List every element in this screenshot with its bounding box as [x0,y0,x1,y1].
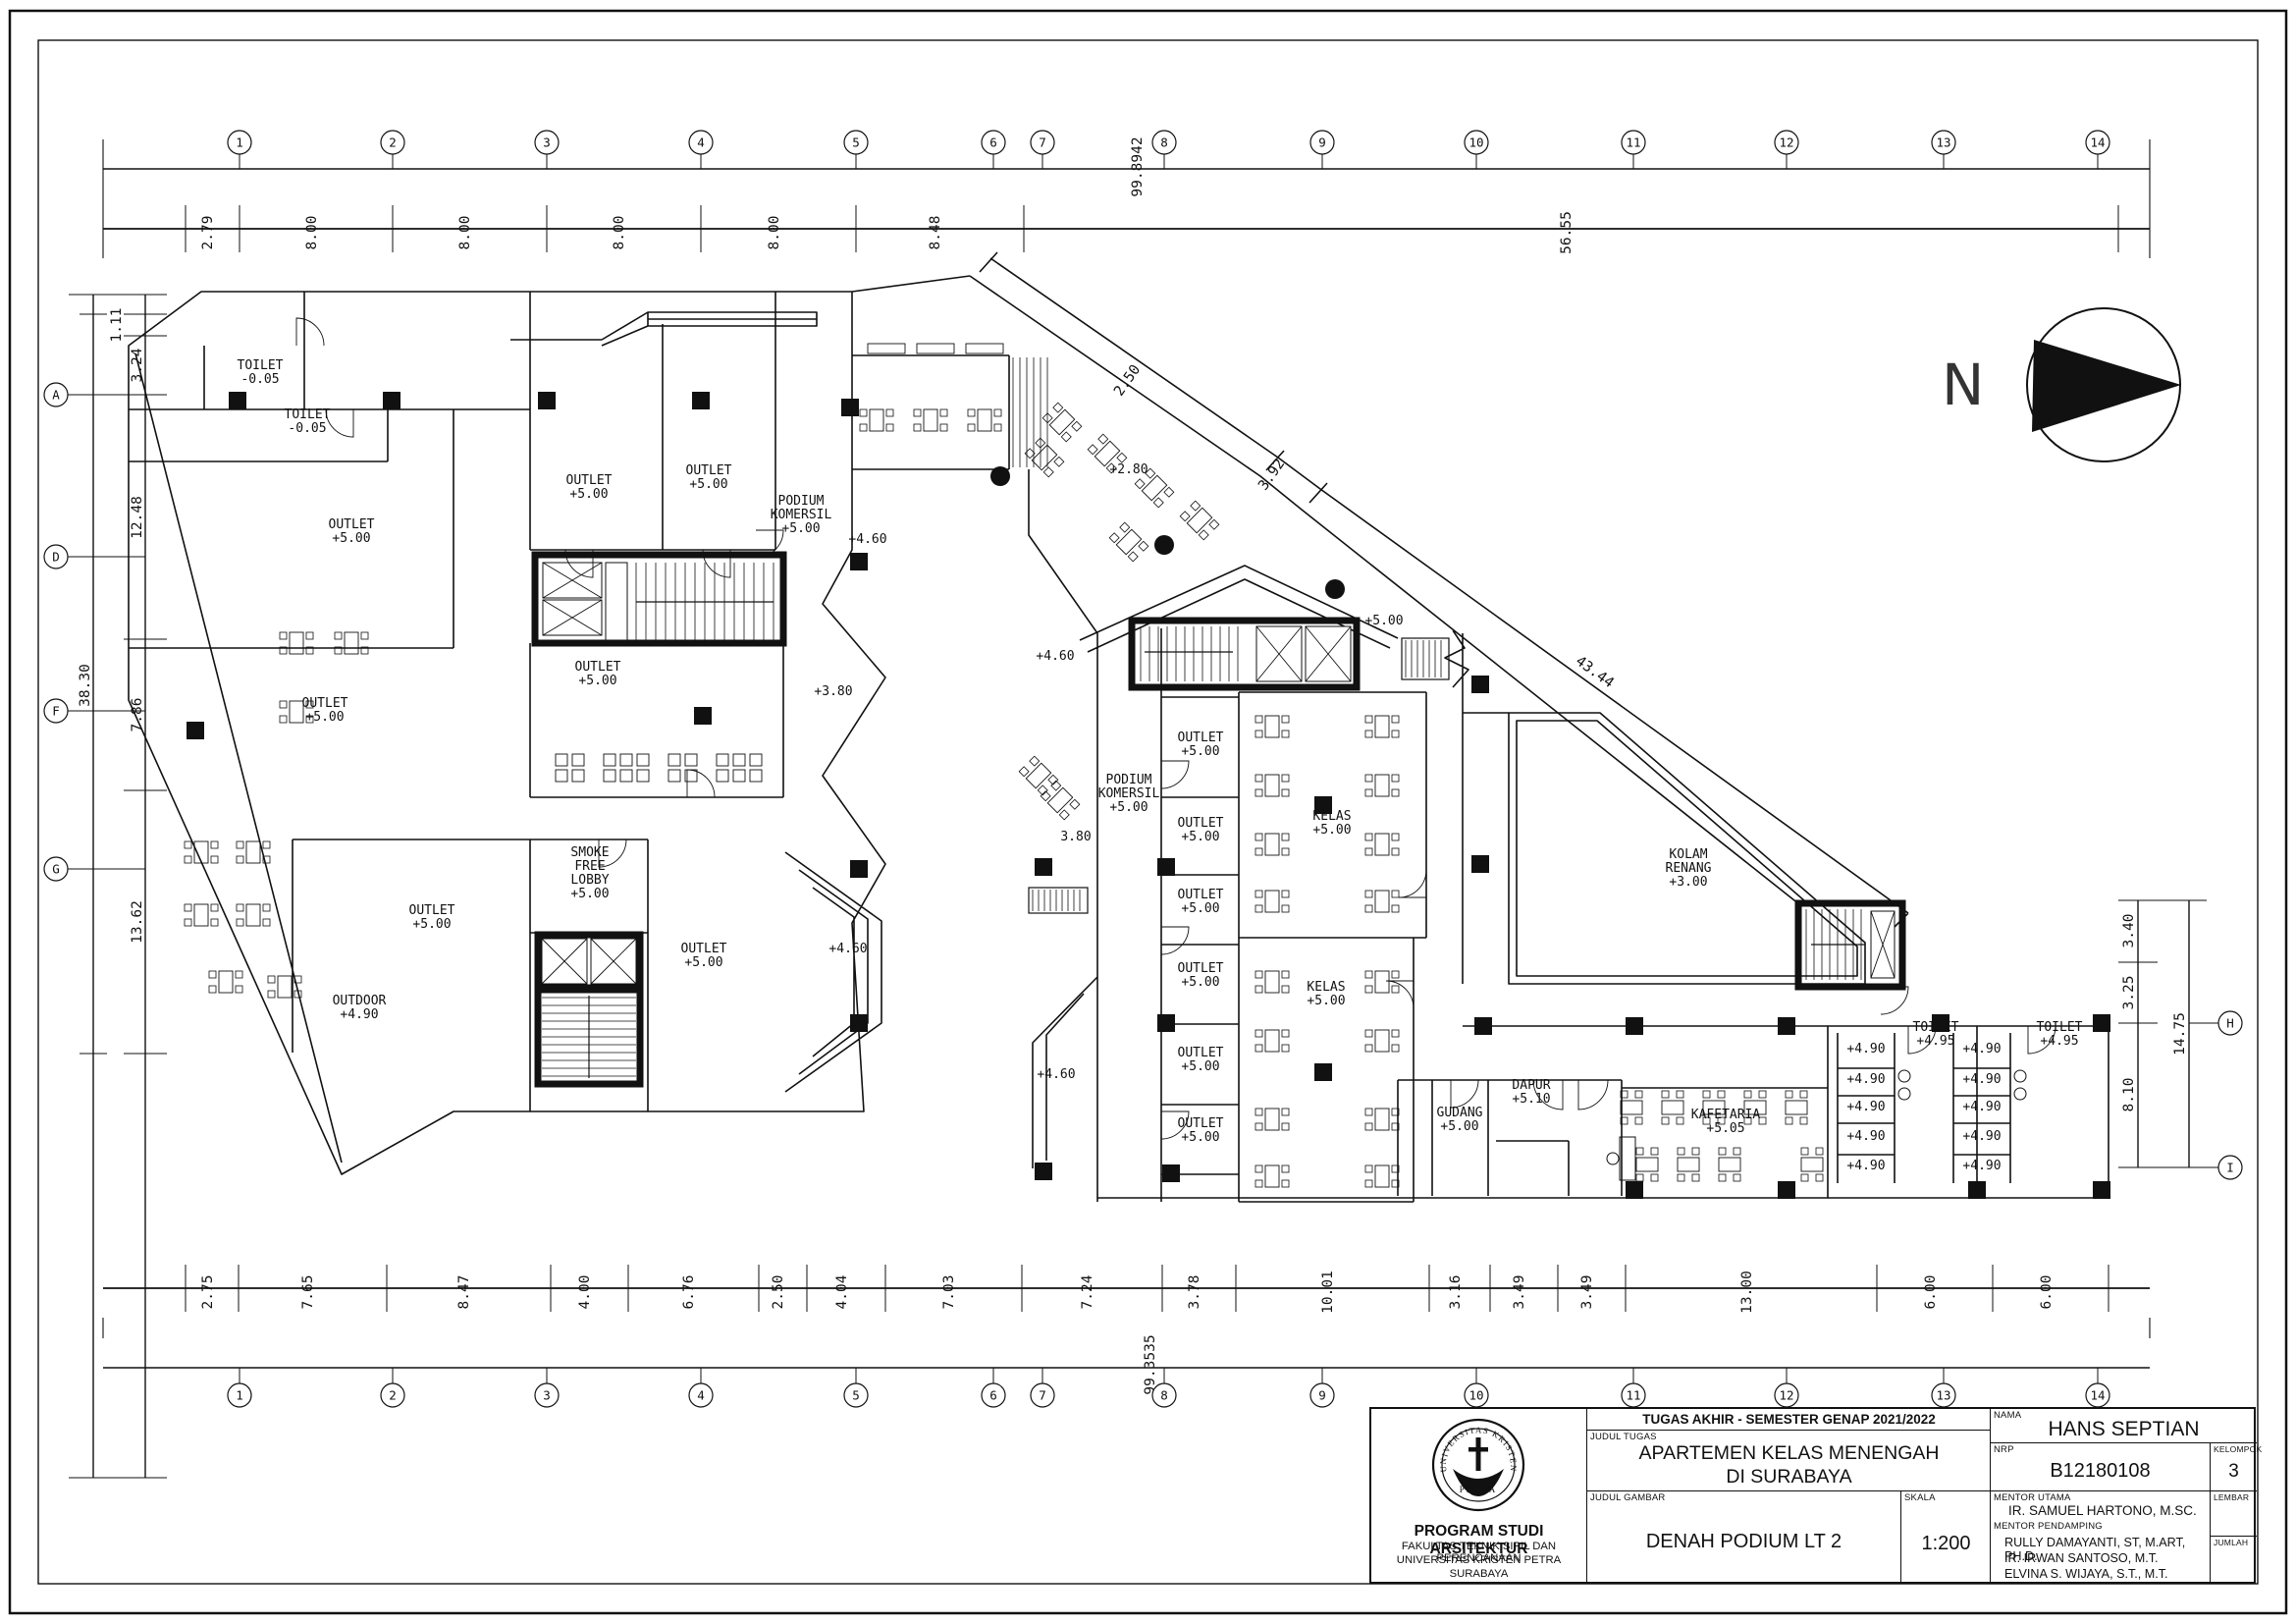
planter-icon [966,344,1003,353]
institution-cell: UNIVERSITAS KRISTEN PETRA PROGRAM STUDI … [1371,1409,1586,1584]
drawing-sheet: N 2.798.008.008.008.008.4856.5599.894212… [0,0,2296,1624]
jumlah-cell: JUMLAH [2210,1537,2257,1584]
column-icon [1778,1017,1795,1035]
room-label: OUTLET+5.00 [1178,888,1224,916]
table-seating-icon [1255,716,1289,737]
grid-bubble-label: 13 [1936,1388,1950,1403]
level-label: +5.00 [1364,614,1403,628]
student-name: HANS SEPTIAN [1991,1418,2257,1441]
room-label: OUTLET+5.00 [409,903,455,932]
planter-icon [868,344,905,353]
column-icon [1157,858,1175,876]
dim-label: 6.00 [2039,1275,2055,1310]
grid-bubble-label: D [52,550,60,565]
table-seating-icon [185,841,218,863]
skala-cell: SKALA 1:200 [1900,1491,1991,1584]
dim-label: 8.00 [457,216,473,250]
level-label: +4.90 [1846,1100,1885,1114]
column-icon [1474,1017,1492,1035]
column-icon [1471,676,1489,693]
column-dot-icon [1154,535,1174,555]
grid-bubble-label: 3 [543,1388,551,1403]
column-icon [229,392,246,409]
table-seating-icon [1109,522,1148,562]
column-dot-icon [1325,579,1345,599]
judul-tugas-cell: JUDUL TUGAS APARTEMEN KELAS MENENGAH DI … [1587,1431,1991,1491]
dim-label: 4.00 [577,1275,593,1310]
judul-gambar-cell: JUDUL GAMBAR DENAH PODIUM LT 2 [1587,1491,1900,1584]
table-seating-icon [1365,891,1399,912]
dim-label: 8.00 [612,216,627,250]
lembar-cell: LEMBAR [2210,1491,2257,1537]
grid-bubble-label: 1 [236,1388,243,1403]
table-seating-icon [1719,1148,1740,1181]
column-icon [1471,855,1489,873]
dim-label: 13.00 [1739,1271,1755,1314]
table-seating-icon [1255,1165,1289,1187]
grid-bubble-label: 10 [1468,1388,1483,1403]
overall-dim-label: 38.30 [78,664,93,707]
floor-plan-drawing: N 2.798.008.008.008.008.4856.5599.894212… [0,0,2296,1624]
nama-cell: NAMA HANS SEPTIAN [1991,1409,2257,1443]
svg-text:PETRA: PETRA [1460,1485,1498,1494]
level-label: +4.90 [1962,1129,2001,1144]
table-seating-icon [1365,1109,1399,1130]
fixture-icon [1898,1088,1910,1100]
level-label: +4.90 [1962,1100,2001,1114]
judul-gambar-label: JUDUL GAMBAR [1590,1492,1665,1503]
table-seating-icon [1041,781,1080,820]
grid-bubble-label: 6 [989,135,997,150]
column-dot-icon [990,466,1010,486]
column-icon [1162,1164,1180,1182]
dim-label: 8.00 [767,216,782,250]
grid-bubble-label: 14 [2090,135,2105,150]
drawing-title: DENAH PODIUM LT 2 [1587,1531,1900,1553]
level-label: +4.60 [1036,649,1074,664]
room-label: OUTLET+5.00 [1178,816,1224,844]
north-arrow: N [1942,308,2181,461]
column-icon [850,553,868,570]
level-label: +4.60 [848,532,886,547]
grid-bubble-label: 12 [1779,1388,1793,1403]
door-swing-icon [1161,927,1189,954]
room-label: TOILET-0.05 [285,407,331,436]
table-seating-icon [1801,1148,1823,1181]
dim-label: 8.47 [456,1275,472,1310]
mentor-utama: IR. SAMUEL HARTONO, M.SC. [2008,1503,2197,1518]
dim-label: 3.40 [2121,914,2137,948]
table-seating-icon [1019,756,1058,795]
dim-label: 2.50 [771,1275,786,1310]
level-label: +4.90 [1846,1129,1885,1144]
table-seating-icon [1180,501,1219,540]
door-swing-icon [1451,1080,1478,1108]
column-icon [1626,1017,1643,1035]
column-icon [692,392,710,409]
mentor-pendamping-3: ELVINA S. WIJAYA, S.T., M.T. [2004,1567,2168,1581]
dim-label: 1.11 [109,308,125,343]
level-label: +4.90 [1846,1042,1885,1056]
table-seating-icon [1255,1109,1289,1130]
level-label: +4.90 [1962,1159,2001,1173]
room-label: KAFETARIA+5.05 [1691,1108,1761,1136]
column-icon [1778,1181,1795,1199]
scale-value: 1:200 [1901,1533,1991,1555]
column-icon [694,707,712,725]
overall-dim-label: 99.3535 [1143,1334,1158,1394]
grid-bubble-label: F [52,704,60,719]
dim-label: 3.25 [2121,976,2137,1010]
grid-bubble-label: 4 [697,135,705,150]
grid-bubble-label: 1 [236,135,243,150]
north-arrow-wedge [2032,340,2181,432]
room-label: KELAS+5.00 [1312,809,1351,838]
room-label: OUTLET+5.00 [329,517,375,546]
room-label: OUTLET+5.00 [566,473,613,502]
mentor-utama-label: MENTOR UTAMA [1994,1492,2071,1503]
room-label: GUDANG+5.00 [1437,1106,1483,1134]
dim-label: 13.62 [130,900,145,944]
table-seating-icon [1255,1030,1289,1052]
table-seating-icon [1662,1091,1683,1124]
table-seating-icon [1786,1091,1807,1124]
room-label: OUTLET+5.00 [1178,1046,1224,1074]
dim-label: 8.00 [304,216,320,250]
table-seating-icon [1255,775,1289,796]
room-label: KELAS+5.00 [1307,980,1345,1008]
middle-column: TUGAS AKHIR - SEMESTER GENAP 2021/2022 J… [1586,1409,1990,1584]
table-seating-icon [968,409,1001,431]
overall-dim-label: 14.75 [2172,1012,2188,1056]
judul-tugas-label: JUDUL TUGAS [1590,1432,1657,1442]
room-label: OUTLET+5.00 [302,696,348,725]
lembar-label: LEMBAR [2214,1492,2249,1502]
dim-label: 6.76 [681,1275,697,1310]
grid-bubble-label: 2 [389,135,397,150]
jumlah-label: JUMLAH [2214,1538,2248,1547]
institution-city: SURABAYA [1371,1568,1586,1580]
column-icon [850,1014,868,1032]
overall-dim-label: 99.8942 [1130,136,1146,196]
diagonal-dim-label: 43.44 [1573,653,1617,691]
table-seating-icon [1365,1030,1399,1052]
diagonal-dim-label: 2.50 [1111,362,1144,400]
nrp-label: NRP [1994,1444,2014,1455]
room-label: OUTLET+5.00 [1178,1116,1224,1145]
level-label: +4.90 [1846,1072,1885,1087]
table-seating-icon [1042,403,1082,442]
mentor-pendamping-label: MENTOR PENDAMPING [1994,1521,2103,1532]
grid-bubble-label: 9 [1318,1388,1326,1403]
column-icon [187,722,204,739]
room-label: OUTLET+5.00 [1178,961,1224,990]
table-seating-icon [1365,834,1399,855]
column-icon [1314,1063,1332,1081]
skala-label: SKALA [1904,1492,1936,1503]
table-seating-icon [1255,834,1289,855]
column-icon [1626,1181,1643,1199]
kelompok-cell: KELOMPOK 3 [2210,1443,2257,1491]
door-swing-icon [687,770,715,797]
grid-bubble-label: 10 [1468,135,1483,150]
dim-label: 56.55 [1559,211,1575,254]
plan-detail [185,318,2110,1199]
grid-bubble-label: 13 [1936,135,1950,150]
dim-label: 3.16 [1448,1275,1464,1310]
column-icon [1035,1163,1052,1180]
dim-label: 8.48 [928,216,943,250]
level-label: +4.90 [1846,1159,1885,1173]
door-swing-icon [1881,987,1908,1014]
table-seating-icon [237,904,270,926]
column-icon [1157,1014,1175,1032]
table-seating-icon [209,971,242,993]
right-column: NAMA HANS SEPTIAN NRP B12180108 KELOMPOK… [1990,1409,2256,1584]
room-label: OUTLET+5.00 [1178,731,1224,759]
room-label: SMOKEFREELOBBY+5.00 [570,845,609,901]
door-swing-icon [1399,870,1426,897]
grid-bubble-label: 7 [1039,135,1046,150]
column-icon [2093,1181,2110,1199]
table-seating-icon [280,632,313,654]
table-seating-icon [860,409,893,431]
column-icon [383,392,400,409]
grid-bubble-label: 11 [1626,135,1640,150]
level-label: +4.90 [1962,1042,2001,1056]
grid-bubble-label: 12 [1779,135,1793,150]
grid-bubble-label: 2 [389,1388,397,1403]
column-icon [2093,1014,2110,1032]
north-letter: N [1942,352,1984,418]
grid-bubble-label: 5 [852,1388,860,1403]
grid-bubble-label: 14 [2090,1388,2105,1403]
level-label: +4.90 [1962,1072,2001,1087]
dim-label: 2.79 [200,216,216,250]
table-seating-icon [1678,1148,1699,1181]
nrp-cell: NRP B12180108 [1991,1443,2210,1491]
door-swing-icon [296,318,324,346]
table-seating-icon [185,904,218,926]
project-title-line1: APARTEMEN KELAS MENENGAH [1587,1442,1991,1465]
dim-label: 4.04 [834,1274,850,1309]
grid-bubble-label: 6 [989,1388,997,1403]
grid-bubble-label: 8 [1160,1388,1168,1403]
grid-bubble-label: 3 [543,135,551,150]
mentor-cell: MENTOR UTAMA IR. SAMUEL HARTONO, M.SC. M… [1991,1491,2210,1584]
dim-label: 10.01 [1320,1271,1336,1314]
column-icon [841,399,859,416]
level-label: +3.80 [814,684,852,699]
dim-label: 7.24 [1080,1274,1095,1309]
sheet-header: TUGAS AKHIR - SEMESTER GENAP 2021/2022 [1587,1412,1991,1427]
group-number: 3 [2211,1461,2257,1483]
dim-label: 3.78 [1187,1275,1202,1310]
dim-label: 3.24 [130,348,145,382]
grid-bubble-label: 4 [697,1388,705,1403]
room-label: OUTLET+5.00 [686,463,732,492]
grid-bubble-label: 8 [1160,135,1168,150]
dim-label: 7.86 [130,698,145,732]
dim-label: 12.48 [130,496,145,539]
table-seating-icon [1255,891,1289,912]
grid-bubble-label: H [2226,1016,2234,1031]
room-label: PODIUMKOMERSIL+5.00 [1098,773,1160,815]
project-title-line2: DI SURABAYA [1587,1466,1991,1489]
dim-label: 8.10 [2121,1078,2137,1112]
column-icon [850,860,868,878]
room-label: TOILET-0.05 [238,358,284,387]
fixture-icon [2014,1088,2026,1100]
room-label: TOILET+4.95 [2037,1020,2083,1049]
dim-label: 2.75 [200,1275,216,1310]
fixture-icon [2014,1070,2026,1082]
table-seating-icon [335,632,368,654]
room-label: TOILET+4.95 [1913,1020,1959,1049]
dim-label: 6.00 [1923,1275,1939,1310]
column-icon [1968,1181,1986,1199]
institution-university: UNIVERSITAS KRISTEN PETRA [1371,1554,1586,1566]
kelompok-label: KELOMPOK [2214,1444,2262,1454]
room-label: KOLAMRENANG+3.00 [1666,847,1712,890]
table-seating-icon [1365,775,1399,796]
room-label: OUTLET+5.00 [681,942,727,970]
mentor-pendamping-2: IR. IRWAN SANTOSO, M.T. [2004,1551,2159,1565]
door-swing-icon [1161,761,1189,788]
table-seating-icon [1025,438,1064,477]
level-label: +4.60 [828,942,867,956]
dim-label: 3.49 [1512,1275,1527,1310]
grid-bubble-label: 5 [852,135,860,150]
grid-bubble-label: I [2226,1161,2234,1175]
dim-label: 7.03 [941,1275,957,1310]
dim-label: 7.65 [300,1275,316,1310]
title-block: UNIVERSITAS KRISTEN PETRA PROGRAM STUDI … [1369,1407,2256,1584]
grid-bubble-label: 7 [1039,1388,1046,1403]
door-swing-icon [1578,1080,1608,1110]
room-label: OUTLET+5.00 [575,660,621,688]
table-seating-icon [1621,1091,1642,1124]
level-label: 3.80 [1060,830,1091,844]
table-seating-icon [1365,1165,1399,1187]
room-labels: TOILET-0.05TOILET-0.05OUTLET+5.00OUTLET+… [238,358,2083,1173]
planter-icon [917,344,954,353]
fixture-icon [1898,1070,1910,1082]
grid-bubble-label: 9 [1318,135,1326,150]
dim-label: 3.49 [1579,1275,1595,1310]
door-swing-icon [1386,981,1414,1008]
student-id: B12180108 [1991,1460,2210,1483]
table-seating-icon [1365,716,1399,737]
room-label: DAPUR+5.10 [1512,1078,1550,1107]
room-label: OUTDOOR+4.90 [333,994,387,1022]
level-label: +4.60 [1037,1067,1075,1082]
grid-bubble-label: 11 [1626,1388,1640,1403]
university-logo: UNIVERSITAS KRISTEN PETRA [1371,1411,1586,1519]
grid-bubble-label: A [52,388,60,403]
table-seating-icon [1255,971,1289,993]
fixture-icon [1607,1153,1619,1164]
column-icon [1035,858,1052,876]
table-seating-icon [1636,1148,1658,1181]
column-icon [538,392,556,409]
level-label: +2.80 [1109,462,1148,477]
table-seating-icon [914,409,947,431]
grid-bubble-label: G [52,862,60,877]
